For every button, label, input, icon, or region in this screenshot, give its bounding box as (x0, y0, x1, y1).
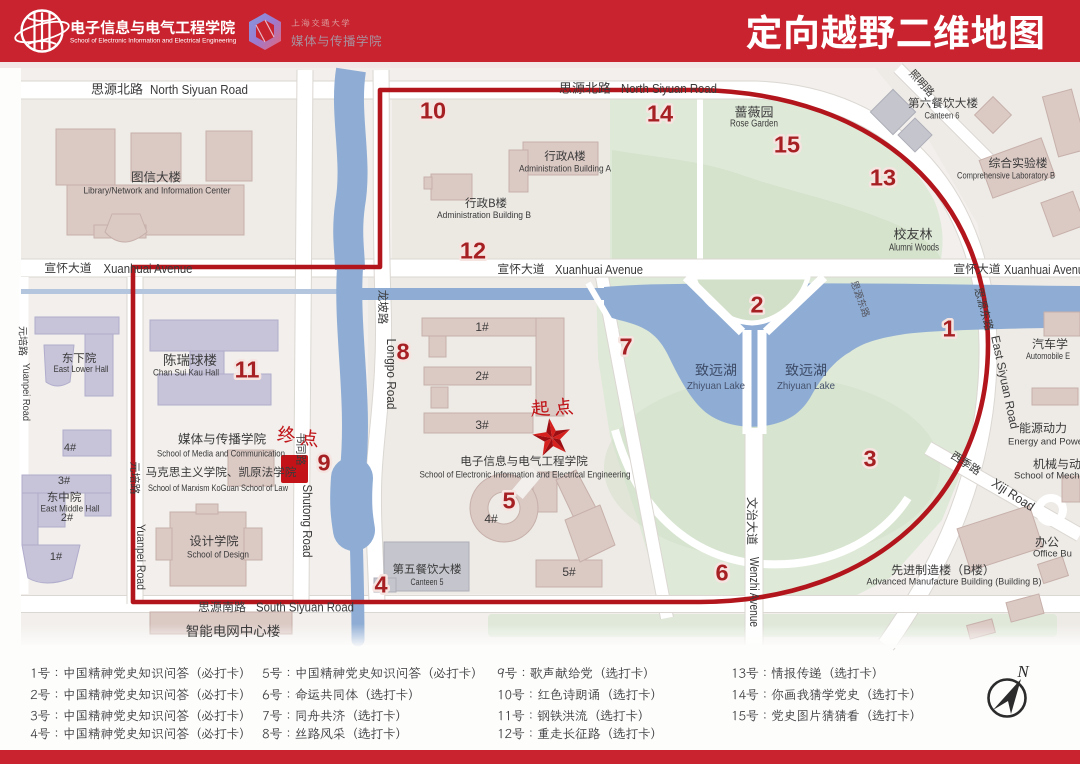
svg-text:Automobile E: Automobile E (1026, 351, 1070, 361)
svg-text:Administration Building A: Administration Building A (519, 164, 611, 174)
svg-text:East Lower Hall: East Lower Hall (54, 364, 109, 374)
svg-text:Longpo Road: Longpo Road (384, 339, 398, 410)
svg-text:Chan Sui Kau Hall: Chan Sui Kau Hall (153, 368, 219, 378)
svg-text:School of Electronic Informati: School of Electronic Information and Ele… (70, 38, 237, 45)
svg-text:2: 2 (750, 292, 763, 318)
svg-text:Alumni Woods: Alumni Woods (889, 243, 939, 254)
svg-text:5#: 5# (562, 565, 576, 579)
svg-text:11: 11 (235, 357, 260, 383)
svg-text:Energy and Power Engine: Energy and Power Engine (1008, 437, 1080, 448)
svg-text:2#: 2# (475, 369, 489, 383)
svg-text:School of Electronic Informati: School of Electronic Information and Ele… (420, 470, 631, 480)
svg-text:15: 15 (774, 132, 800, 158)
svg-text:10: 10 (420, 98, 446, 124)
svg-text:Wenzhi Avenue: Wenzhi Avenue (747, 557, 761, 627)
svg-text:Library/Network and Informatio: Library/Network and Information Center (84, 186, 231, 196)
svg-text:4: 4 (374, 572, 387, 598)
svg-text:Xuanhuai Avenue: Xuanhuai Avenue (555, 262, 643, 277)
svg-text:School of Marxism KoGuan Schoo: School of Marxism KoGuan School of Law (148, 483, 288, 493)
svg-text:12: 12 (460, 238, 486, 264)
svg-text:2#: 2# (61, 512, 74, 524)
svg-text:Yuanpei Road: Yuanpei Road (20, 363, 32, 421)
svg-text:13: 13 (870, 165, 896, 191)
svg-text:1#: 1# (475, 320, 489, 334)
svg-text:Yuanpei Road: Yuanpei Road (134, 524, 148, 590)
svg-text:4#: 4# (484, 512, 498, 526)
svg-text:3#: 3# (475, 418, 489, 432)
svg-text:Administration Building B: Administration Building B (437, 210, 531, 220)
svg-text:7: 7 (619, 334, 632, 360)
svg-text:Zhiyuan Lake: Zhiyuan Lake (687, 380, 745, 392)
svg-text:Office Bu: Office Bu (1033, 549, 1072, 560)
svg-text:Comprehensive Laboratory B: Comprehensive Laboratory B (957, 171, 1055, 181)
svg-text:9: 9 (317, 450, 330, 476)
svg-text:N: N (1016, 662, 1030, 681)
svg-text:6: 6 (715, 560, 728, 586)
svg-text:Xuanhuai Avenu: Xuanhuai Avenu (1004, 262, 1080, 277)
svg-text:School of Design: School of Design (187, 550, 249, 560)
svg-text:5: 5 (502, 488, 515, 514)
svg-text:North Siyuan Road: North Siyuan Road (150, 82, 248, 97)
svg-text:3: 3 (863, 446, 876, 472)
svg-text:14: 14 (647, 101, 673, 127)
svg-text:Canteen 6: Canteen 6 (925, 111, 960, 121)
svg-text:1: 1 (942, 316, 955, 342)
svg-text:Shutong Road: Shutong Road (300, 485, 314, 558)
svg-text:Rose Garden: Rose Garden (730, 119, 778, 130)
svg-text:School of Media and Communicat: School of Media and Communication (157, 449, 285, 459)
svg-text:Xuanhuai Avenue: Xuanhuai Avenue (104, 261, 193, 276)
svg-text:Canteen 5: Canteen 5 (411, 577, 444, 587)
svg-text:South Siyuan Road: South Siyuan Road (256, 600, 354, 615)
svg-text:North Siyuan Road: North Siyuan Road (621, 81, 717, 96)
svg-text:School of Mech: School of Mech (1014, 471, 1079, 482)
svg-text:Zhiyuan Lake: Zhiyuan Lake (777, 380, 835, 392)
svg-text:Advanced Manufacture Building: Advanced Manufacture Building (Building … (867, 577, 1042, 587)
svg-text:3#: 3# (58, 475, 71, 487)
svg-text:1#: 1# (50, 551, 63, 563)
svg-text:4#: 4# (64, 442, 77, 454)
